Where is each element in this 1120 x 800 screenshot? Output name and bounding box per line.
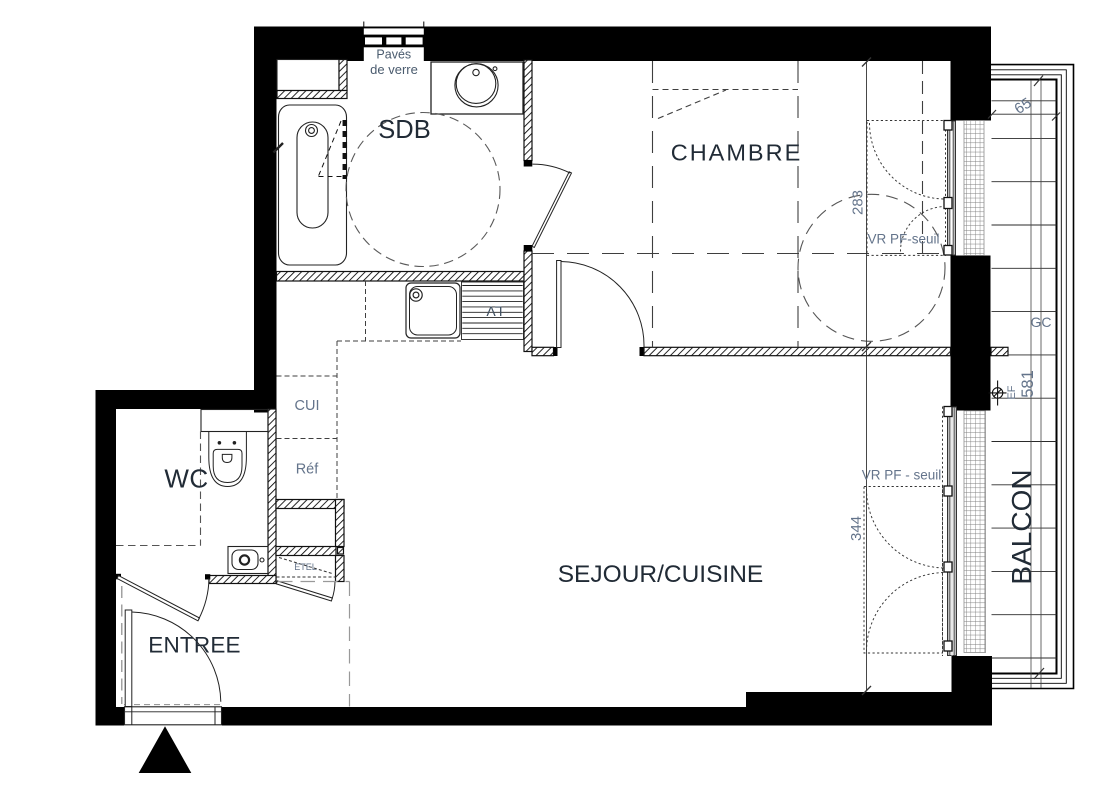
svg-text:SDB: SDB xyxy=(378,116,430,144)
svg-text:BALCON: BALCON xyxy=(1006,469,1037,584)
svg-text:VR PF - seuil: VR PF - seuil xyxy=(862,468,942,483)
svg-text:EF: EF xyxy=(1006,385,1018,399)
svg-text:CUI: CUI xyxy=(295,398,320,414)
svg-text:ETEL: ETEL xyxy=(294,562,317,572)
svg-text:344: 344 xyxy=(848,516,865,541)
svg-text:LV: LV xyxy=(486,304,503,320)
svg-text:WC: WC xyxy=(164,464,208,494)
svg-text:SEJOUR/CUISINE: SEJOUR/CUISINE xyxy=(558,561,764,588)
svg-text:VR PF-seuil: VR PF-seuil xyxy=(867,232,939,247)
svg-text:CHAMBRE: CHAMBRE xyxy=(671,140,803,166)
svg-text:Réf: Réf xyxy=(296,462,320,478)
svg-text:de verre: de verre xyxy=(370,62,418,77)
svg-text:ENTREE: ENTREE xyxy=(148,633,240,658)
svg-text:581: 581 xyxy=(1019,370,1037,398)
svg-text:283: 283 xyxy=(850,190,867,215)
svg-text:GC: GC xyxy=(1031,314,1052,330)
svg-text:Pavés: Pavés xyxy=(376,48,411,62)
